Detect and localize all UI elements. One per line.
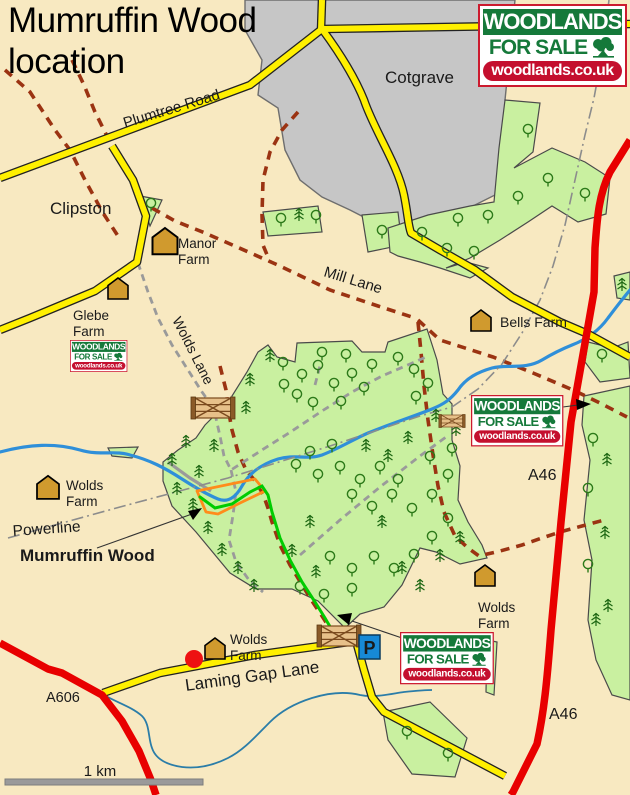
logo-for-sale-text: FOR SALE (74, 352, 112, 362)
gate-icon-east (439, 414, 465, 427)
logo-url-text: woodlands.co.uk (403, 668, 491, 681)
logo-for-sale-text: FOR SALE (489, 35, 587, 60)
logo-url-text: woodlands.co.uk (474, 430, 560, 442)
parking-letter: P (363, 638, 375, 658)
woodlands-logo-bottom: WOODLANDS FOR SALE woodlands.co.uk (400, 632, 494, 684)
a606-label: A606 (46, 690, 80, 706)
page-title-line1: Mumruffin Wood (8, 0, 256, 41)
clipston-label: Clipston (50, 199, 111, 218)
bells-farm-label: Bells Farm (500, 314, 567, 330)
gate-icon-west (191, 397, 235, 419)
oak-tree-icon (590, 37, 616, 59)
red-marker-dot (185, 650, 203, 668)
logo-for-sale-text: FOR SALE (407, 652, 469, 668)
woodlands-logo-right: WOODLANDS FOR SALE woodlands.co.uk (471, 395, 563, 446)
gate-icon-south (317, 625, 361, 647)
map-page: { "title": {"line1": "Mumruffin Wood", "… (0, 0, 630, 795)
woodlands-logo-main: WOODLANDS FOR SALE woodlands.co.uk (478, 4, 627, 87)
logo-for-sale-row: FOR SALE (403, 652, 491, 668)
cotgrave-label: Cotgrave (385, 68, 454, 87)
page-title: Mumruffin Wood location (8, 0, 256, 83)
scale-label: 1 km (84, 763, 117, 780)
logo-for-sale-row: FOR SALE (474, 414, 560, 430)
oak-tree-icon (540, 415, 556, 429)
logo-woodlands-text: WOODLANDS (483, 9, 622, 35)
logo-for-sale-row: FOR SALE (483, 35, 622, 60)
logo-url-text: woodlands.co.uk (72, 362, 126, 370)
woodlands-logo-small: WOODLANDS FOR SALE woodlands.co.uk (70, 340, 127, 372)
logo-for-sale-text: FOR SALE (478, 414, 539, 430)
parking-sign: P (359, 635, 380, 659)
a46-north-label: A46 (528, 467, 557, 484)
page-title-line2: location (8, 41, 256, 82)
logo-woodlands-text: WOODLANDS (474, 398, 560, 414)
logo-for-sale-row: FOR SALE (72, 352, 126, 362)
oak-tree-icon (471, 652, 487, 666)
oak-tree-icon (113, 353, 123, 361)
logo-woodlands-text: WOODLANDS (403, 635, 491, 651)
logo-woodlands-text: WOODLANDS (72, 342, 126, 352)
logo-url-text: woodlands.co.uk (483, 61, 622, 81)
wood-patch-1 (263, 206, 322, 236)
mumruffin-wood-label: Mumruffin Wood (20, 546, 155, 565)
a46-south-label: A46 (549, 706, 578, 723)
